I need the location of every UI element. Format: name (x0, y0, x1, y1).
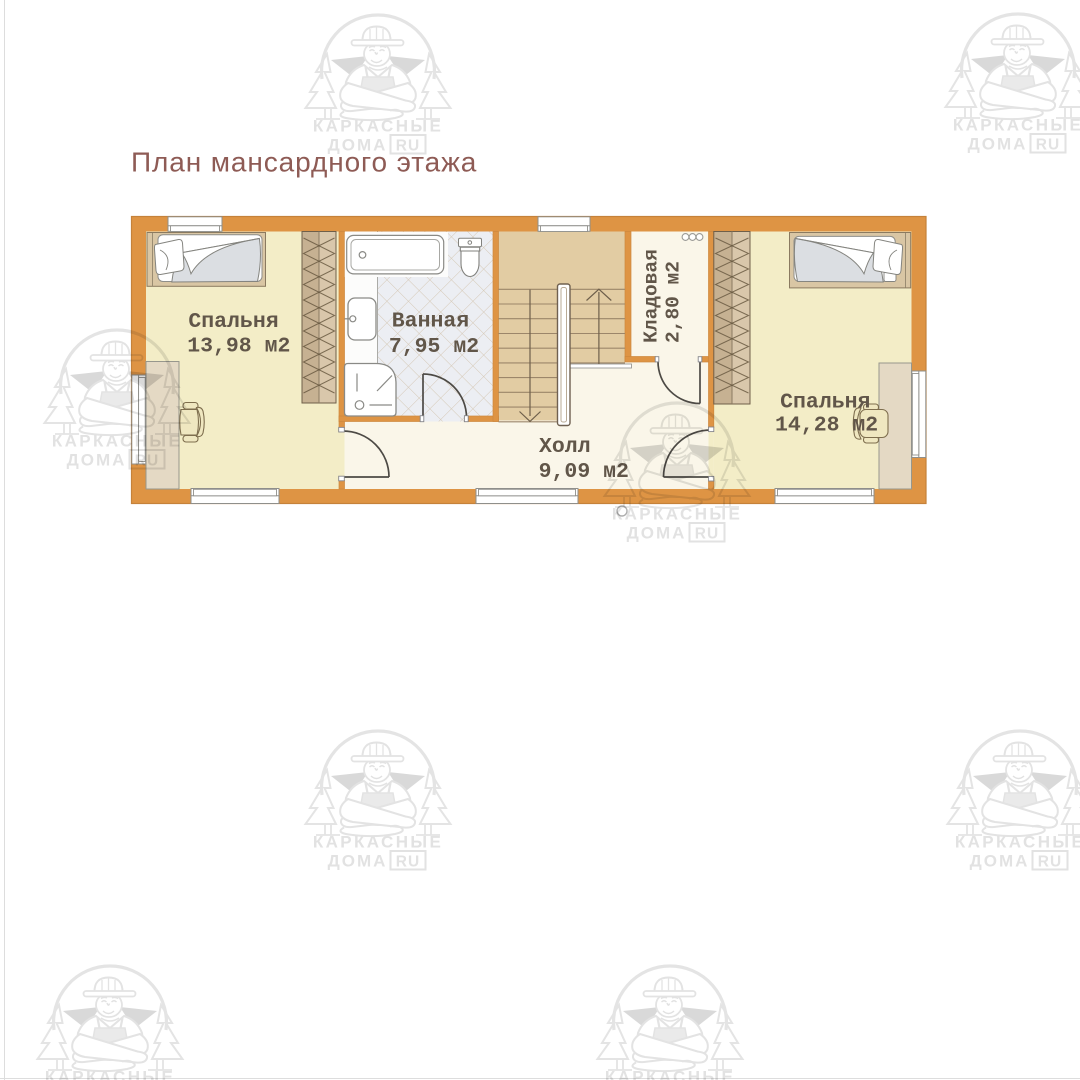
svg-text:Спальня: Спальня (780, 391, 870, 415)
svg-text:14,28 м2: 14,28 м2 (775, 414, 878, 438)
svg-text:План мансардного этажа: План мансардного этажа (131, 147, 477, 178)
svg-text:Холл: Холл (539, 435, 591, 459)
svg-text:Спальня: Спальня (188, 310, 278, 334)
svg-text:2,80 м2: 2,80 м2 (663, 261, 685, 343)
svg-text:7,95 м2: 7,95 м2 (389, 335, 479, 359)
svg-text:13,98 м2: 13,98 м2 (187, 335, 290, 359)
svg-text:Кладовая: Кладовая (641, 249, 663, 343)
svg-text:Ванная: Ванная (392, 310, 469, 334)
